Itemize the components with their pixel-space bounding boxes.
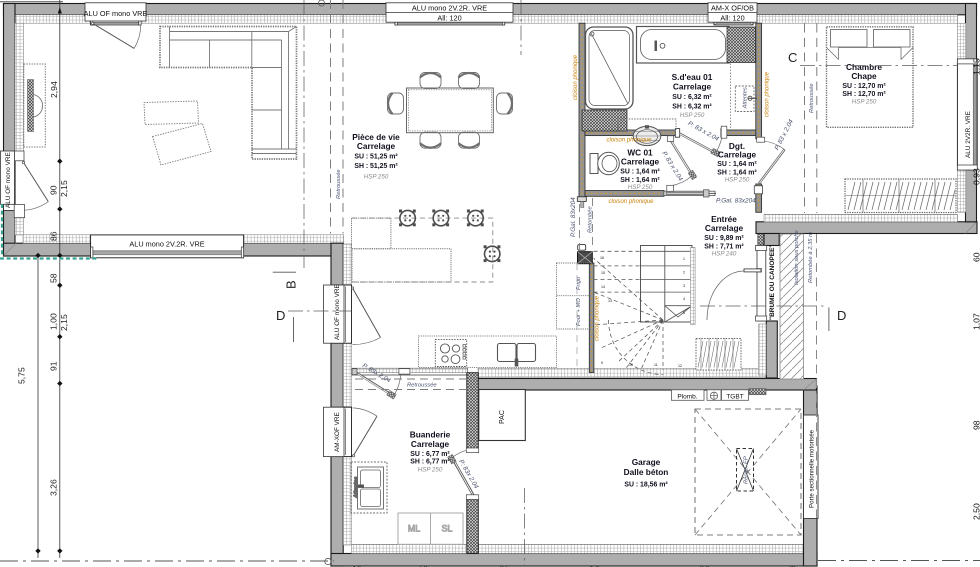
svg-text:PAC: PAC bbox=[499, 410, 506, 424]
svg-text:cloison phonique: cloison phonique bbox=[595, 295, 601, 341]
svg-text:16: 16 bbox=[600, 256, 604, 260]
svg-text:Retroussée: Retroussée bbox=[407, 383, 437, 389]
svg-text:Garage: Garage bbox=[632, 457, 661, 467]
svg-text:SU : 9,89 m²: SU : 9,89 m² bbox=[704, 235, 744, 242]
svg-text:SH : 51,25 m²: SH : 51,25 m² bbox=[354, 163, 398, 170]
svg-text:SU : 1,64 m²: SU : 1,64 m² bbox=[717, 161, 757, 168]
svg-text:ALU OF mono VRE: ALU OF mono VRE bbox=[84, 9, 148, 18]
svg-text:Carrelage: Carrelage bbox=[411, 439, 450, 449]
svg-text:1: 1 bbox=[683, 257, 685, 261]
svg-text:86: 86 bbox=[49, 231, 59, 241]
svg-text:Chape: Chape bbox=[851, 71, 877, 81]
svg-text:Buanderie: Buanderie bbox=[410, 430, 451, 440]
svg-text:All: 120: All: 120 bbox=[720, 13, 744, 22]
svg-text:"BRUME OU CANOPEE": "BRUME OU CANOPEE" bbox=[769, 244, 776, 320]
svg-text:ALU OF mono VRE: ALU OF mono VRE bbox=[5, 152, 12, 208]
svg-text:5: 5 bbox=[683, 311, 685, 315]
svg-text:cloison phonique: cloison phonique bbox=[573, 54, 579, 100]
svg-text:S.d'eau 01: S.d'eau 01 bbox=[672, 72, 713, 82]
svg-text:ALU 2V2R. VRE: ALU 2V2R. VRE bbox=[965, 111, 972, 158]
svg-text:ALU OF mono VRE: ALU OF mono VRE bbox=[334, 284, 341, 340]
svg-text:11: 11 bbox=[654, 363, 658, 367]
svg-text:Carrelage: Carrelage bbox=[673, 82, 712, 92]
svg-text:HSP 250: HSP 250 bbox=[418, 467, 443, 474]
svg-text:0,93: 0,93 bbox=[972, 168, 980, 185]
svg-text:ALU mono 2V.2R. VRE: ALU mono 2V.2R. VRE bbox=[412, 4, 487, 13]
svg-text:AM-XOF VRE: AM-XOF VRE bbox=[334, 412, 341, 452]
svg-text:Retroussée: Retroussée bbox=[809, 83, 815, 113]
svg-text:SL: SL bbox=[442, 524, 453, 534]
svg-text:Dalle béton: Dalle béton bbox=[624, 467, 669, 477]
svg-text:13: 13 bbox=[608, 299, 612, 303]
svg-text:HSP 250: HSP 250 bbox=[680, 112, 705, 119]
svg-text:SH : 1,64 m²: SH : 1,64 m² bbox=[717, 169, 757, 176]
svg-text:HSP 250: HSP 250 bbox=[725, 177, 750, 184]
svg-text:Carrelage: Carrelage bbox=[718, 150, 757, 160]
svg-text:cloison phonique: cloison phonique bbox=[765, 71, 771, 117]
svg-text:HSP 250: HSP 250 bbox=[364, 174, 389, 181]
svg-text:SU : 6,77 m²: SU : 6,77 m² bbox=[410, 451, 450, 458]
svg-text:ALU mono 2V.2R. VRE: ALU mono 2V.2R. VRE bbox=[129, 240, 204, 249]
svg-text:1,00: 1,00 bbox=[49, 313, 59, 330]
svg-text:D: D bbox=[276, 308, 285, 323]
svg-text:Porte sectionnelle motorisée: Porte sectionnelle motorisée bbox=[809, 429, 816, 508]
svg-text:4: 4 bbox=[683, 297, 685, 301]
svg-text:All: 120: All: 120 bbox=[437, 13, 461, 22]
svg-text:SU : 6,32 m²: SU : 6,32 m² bbox=[672, 94, 712, 101]
svg-text:2: 2 bbox=[683, 271, 685, 275]
svg-text:Carrelage: Carrelage bbox=[621, 157, 660, 167]
svg-text:AM-X OF/OB: AM-X OF/OB bbox=[711, 4, 754, 13]
svg-text:98: 98 bbox=[972, 420, 980, 430]
svg-text:Retroussée: Retroussée bbox=[336, 169, 342, 199]
svg-text:Plomb.: Plomb. bbox=[677, 394, 697, 401]
svg-text:TGBT: TGBT bbox=[726, 394, 743, 401]
svg-text:Isolation sous porche: Isolation sous porche bbox=[794, 229, 800, 285]
svg-text:SH : 7,71 m²: SH : 7,71 m² bbox=[704, 243, 744, 250]
svg-text:HSP 250: HSP 250 bbox=[628, 184, 653, 191]
svg-text:3,26: 3,26 bbox=[49, 479, 59, 496]
svg-text:SU : 18,56 m²: SU : 18,56 m² bbox=[624, 482, 668, 489]
svg-text:SH : 1,64 m²: SH : 1,64 m² bbox=[620, 177, 660, 184]
svg-text:1,15: 1,15 bbox=[972, 58, 980, 75]
svg-text:9: 9 bbox=[601, 361, 603, 365]
svg-text:SH : 12,70 m²: SH : 12,70 m² bbox=[842, 91, 886, 98]
svg-text:15: 15 bbox=[601, 271, 605, 275]
svg-text:Retombée à 2,35 m: Retombée à 2,35 m bbox=[808, 232, 814, 283]
svg-text:2,94: 2,94 bbox=[49, 81, 59, 98]
svg-text:HSP 240: HSP 240 bbox=[712, 251, 737, 258]
svg-text:SU : 51,25 m²: SU : 51,25 m² bbox=[354, 154, 398, 161]
svg-text:cloison phonique: cloison phonique bbox=[606, 138, 652, 144]
svg-text:B: B bbox=[284, 280, 299, 289]
svg-text:cloison phonique: cloison phonique bbox=[608, 199, 654, 205]
svg-text:SU : 12,70 m²: SU : 12,70 m² bbox=[842, 83, 886, 90]
svg-text:Carrelage: Carrelage bbox=[357, 141, 396, 151]
svg-text:10: 10 bbox=[629, 363, 633, 367]
svg-text:14: 14 bbox=[601, 285, 605, 289]
svg-text:90: 90 bbox=[49, 185, 59, 195]
svg-text:2,50: 2,50 bbox=[972, 503, 980, 520]
svg-text:Retombée: Retombée bbox=[588, 205, 594, 233]
svg-text:3: 3 bbox=[683, 284, 685, 288]
svg-text:D: D bbox=[837, 308, 846, 323]
svg-text:91: 91 bbox=[49, 361, 59, 371]
svg-text:2,15: 2,15 bbox=[59, 314, 69, 331]
svg-text:SU : 1,64 m²: SU : 1,64 m² bbox=[620, 168, 660, 175]
svg-text:Carrelage: Carrelage bbox=[705, 223, 744, 233]
svg-text:P.Gal. 83x204: P.Gal. 83x204 bbox=[570, 197, 577, 237]
svg-text:SH : 6,77 m²: SH : 6,77 m² bbox=[410, 459, 450, 466]
svg-text:C: C bbox=[788, 50, 797, 65]
svg-text:2,15: 2,15 bbox=[59, 180, 69, 197]
svg-text:12: 12 bbox=[678, 364, 682, 368]
svg-text:Recup. EP: Recup. EP bbox=[744, 456, 750, 484]
svg-text:1,07: 1,07 bbox=[972, 313, 980, 330]
svg-text:SH : 6,32 m²: SH : 6,32 m² bbox=[672, 103, 712, 110]
svg-text:Attentes: Attentes bbox=[354, 477, 360, 499]
svg-text:HSP 250: HSP 250 bbox=[852, 99, 877, 106]
svg-text:ML: ML bbox=[408, 524, 420, 534]
svg-text:58: 58 bbox=[49, 273, 59, 283]
svg-text:P.Gal. 83x204: P.Gal. 83x204 bbox=[716, 198, 756, 205]
svg-text:60: 60 bbox=[972, 252, 980, 262]
svg-text:5,75: 5,75 bbox=[17, 367, 27, 384]
